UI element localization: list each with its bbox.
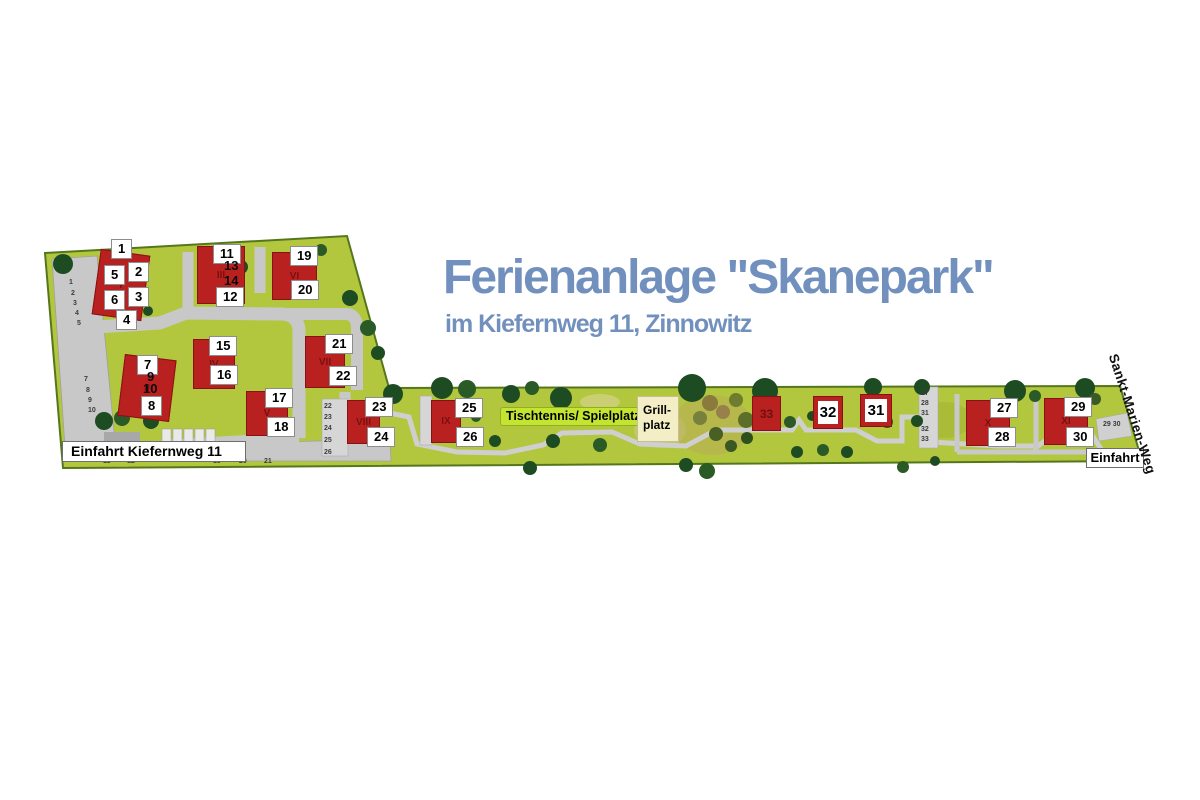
unit-label-1: 1: [111, 239, 132, 259]
parking-number: 33: [921, 436, 929, 444]
parking-number: 29 30: [1103, 421, 1121, 429]
grillplatz-label: Grill- platz: [637, 396, 679, 442]
parking-number: 26: [324, 449, 332, 457]
unit-label-16: 16: [210, 365, 238, 385]
building-numeral: 33: [760, 407, 773, 421]
parking-number: 24: [324, 425, 332, 433]
page-title: Ferienanlage "Skanepark": [443, 252, 993, 304]
unit-label-13: 13: [224, 259, 238, 273]
unit-label-21: 21: [325, 334, 353, 354]
parking-number: 8: [86, 387, 90, 395]
parking-number: 25: [324, 437, 332, 445]
parking-number: 28: [921, 400, 929, 408]
parking-number: 7: [84, 376, 88, 384]
parking-number: 4: [75, 310, 79, 318]
parking-number: 27: [921, 390, 929, 398]
parking-number: 1: [69, 279, 73, 287]
entrance-kiefernweg-label: Einfahrt Kiefernweg 11: [62, 441, 246, 462]
building-number: 32: [818, 401, 838, 424]
parking-number: 2: [71, 290, 75, 298]
parking-number: 23: [324, 414, 332, 422]
parking-number: 3: [73, 300, 77, 308]
unit-label-2: 2: [128, 262, 149, 282]
parking-number: 21: [264, 458, 272, 466]
unit-label-20: 20: [291, 280, 319, 300]
unit-label-25: 25: [455, 398, 483, 418]
parking-number: 32: [921, 426, 929, 434]
unit-label-12: 12: [216, 287, 244, 307]
unit-label-14: 14: [224, 274, 238, 288]
unit-label-6: 6: [104, 290, 125, 310]
parking-number: 22: [324, 403, 332, 411]
building-numeral: VIII: [356, 417, 371, 428]
grillplatz-line2: platz: [643, 418, 678, 433]
parking-number: 9: [88, 397, 92, 405]
unit-label-22: 22: [329, 366, 357, 386]
parking-number: 10: [88, 407, 96, 415]
unit-label-28: 28: [988, 427, 1016, 447]
building-31: 31: [860, 394, 892, 427]
unit-label-30: 30: [1066, 427, 1094, 447]
unit-label-24: 24: [367, 427, 395, 447]
building-numeral: IX: [441, 416, 450, 427]
unit-label-3: 3: [128, 287, 149, 307]
entrance-right-label: Einfahrt: [1086, 448, 1144, 468]
map-layer: IIIIIIIVVVIVIIVIIIIXXXI33323115236479108…: [0, 0, 1200, 800]
unit-label-10: 10: [143, 382, 157, 396]
parking-number: 5: [77, 320, 81, 328]
unit-label-26: 26: [456, 427, 484, 447]
title-block: Ferienanlage "Skanepark" im Kiefernweg 1…: [443, 252, 993, 338]
tischtennis-spielplatz-label: Tischtennis/ Spielplatz: [500, 407, 647, 426]
unit-label-8: 8: [141, 396, 162, 416]
building-numeral: XI: [1061, 416, 1070, 427]
unit-label-19: 19: [290, 246, 318, 266]
unit-label-27: 27: [990, 398, 1018, 418]
unit-label-18: 18: [267, 417, 295, 437]
unit-label-5: 5: [104, 265, 125, 285]
unit-label-29: 29: [1064, 397, 1092, 417]
page-subtitle: im Kiefernweg 11, Zinnowitz: [445, 310, 993, 338]
unit-label-15: 15: [209, 336, 237, 356]
building-number: 31: [865, 399, 887, 422]
grillplatz-line1: Grill-: [643, 403, 678, 418]
building-32: 32: [813, 396, 843, 429]
unit-label-4: 4: [116, 310, 137, 330]
unit-label-17: 17: [265, 388, 293, 408]
site-plan-page: IIIIIIIVVVIVIIVIIIIXXXI33323115236479108…: [0, 0, 1200, 800]
building-33: 33: [752, 396, 781, 431]
unit-label-23: 23: [365, 397, 393, 417]
parking-number: 31: [921, 410, 929, 418]
